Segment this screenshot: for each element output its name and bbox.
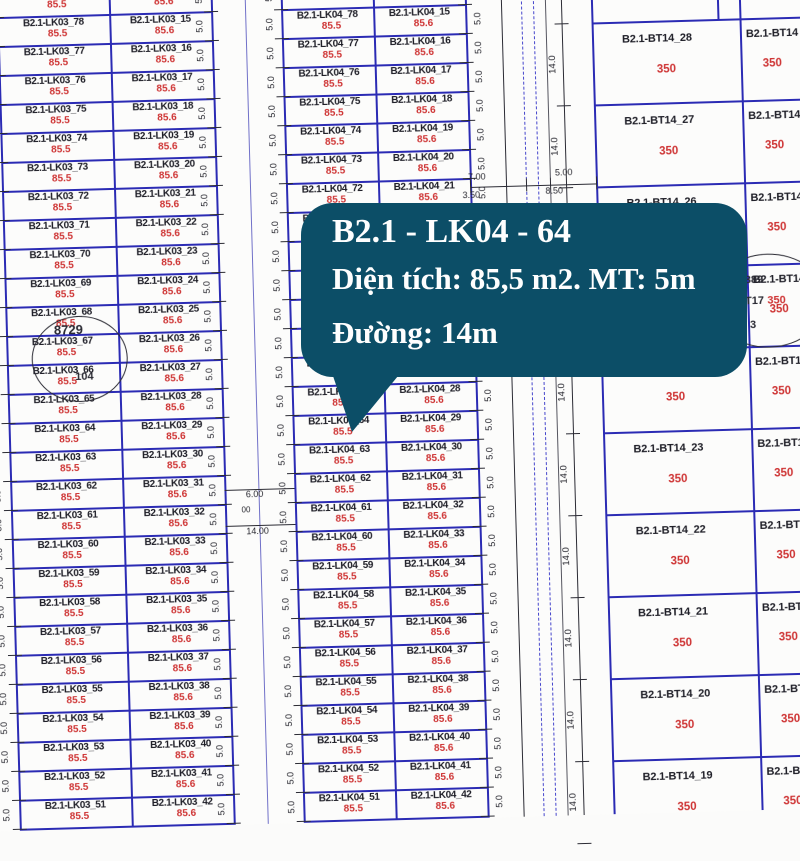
- plot-area: 85.6: [164, 373, 184, 385]
- plot-label[interactable]: B2.1-LK03_31: [143, 477, 204, 490]
- plot-area: 85.5: [336, 542, 356, 554]
- plot-label[interactable]: B2.1-LK03_57: [40, 625, 101, 638]
- plot-area: 85.5: [334, 455, 354, 467]
- plot-area: 85.6: [172, 633, 192, 645]
- dimension-label: 5.0: [279, 539, 289, 552]
- plot-label[interactable]: B2.1-LK03_61: [37, 509, 98, 522]
- plot-area: 85.6: [163, 315, 183, 327]
- dimension-label: 5.0: [285, 771, 295, 784]
- plot-label[interactable]: B2.1-LK04_40: [409, 731, 470, 744]
- dimension-tick: [215, 388, 229, 390]
- plot-area: 85.5: [341, 716, 361, 728]
- plot-label[interactable]: B2.1-LK03_35: [146, 593, 207, 606]
- plot-area: 350: [772, 385, 792, 398]
- plot-label[interactable]: B2.1-LK04_74: [300, 124, 361, 137]
- dimension-label: 5.0: [272, 307, 282, 320]
- dimension-label: 5.0: [280, 568, 290, 581]
- plot-label[interactable]: B2.1-LK03_26: [139, 332, 200, 345]
- dimension-tick: [506, 179, 508, 192]
- plot-area: 85.5: [322, 49, 342, 61]
- dimension-label: 5.0: [198, 165, 208, 178]
- dimension-label: 5.0: [483, 389, 493, 402]
- plot-label[interactable]: B2.1-LK03_52: [44, 770, 105, 783]
- plot-label[interactable]: B2.1-BT14_19: [642, 769, 712, 783]
- dimension-label: 5.0: [203, 338, 213, 351]
- plot-area: 85.5: [62, 520, 82, 532]
- dimension-tick: [215, 417, 229, 419]
- plot-label[interactable]: B2.1-BT14: [748, 109, 800, 122]
- plot-area: 350: [767, 294, 786, 307]
- plot-label[interactable]: B2.1-BT14: [764, 682, 800, 695]
- plot-label[interactable]: B2.1-LK03_62: [36, 480, 97, 493]
- boundary-line: [0, 0, 22, 831]
- plot-area: 350: [670, 555, 690, 568]
- plot-label[interactable]: B2.1-LK04_31: [402, 470, 463, 483]
- plot-label[interactable]: B2.1-LK04_54: [316, 704, 377, 717]
- plot-area: 85.5: [339, 629, 359, 641]
- dimension-label: 5.0: [0, 489, 3, 502]
- plot-label[interactable]: B2.1-BT14: [755, 355, 800, 368]
- plot-label[interactable]: B2.1-LK03_60: [37, 538, 98, 551]
- plot-label[interactable]: B2.1-LK03_19: [133, 129, 194, 142]
- plot-label[interactable]: B2.1-LK03_38: [148, 680, 209, 693]
- dimension-label: 5.0: [265, 47, 275, 60]
- plot-label[interactable]: B2.1-LK03_63: [35, 451, 96, 464]
- boundary-line: [500, 0, 525, 817]
- plot-label[interactable]: B2.1-LK03_74: [26, 132, 87, 145]
- plot-label[interactable]: B2.1-LK03_75: [25, 103, 86, 116]
- dimension-label: 5.0: [208, 512, 218, 525]
- plot-area: 85.5: [54, 260, 74, 272]
- dimension-label: 5.0: [473, 41, 483, 54]
- callout-pointer: [320, 368, 410, 438]
- dimension-tick: [219, 562, 233, 564]
- plot-label[interactable]: B2.1-LK03_37: [148, 651, 209, 664]
- dimension-label: 5.0: [215, 744, 225, 757]
- plot-area: 85.6: [159, 170, 179, 182]
- plot-label[interactable]: B2.1-LK03_29: [141, 419, 202, 432]
- boundary-line: [280, 0, 305, 823]
- dimension-label: 5.0: [272, 279, 282, 292]
- boundary-line: [210, 0, 235, 825]
- plot-label[interactable]: B2.1-LK04_15: [389, 6, 450, 19]
- plot-label[interactable]: B2.1-LK03_39: [149, 709, 210, 722]
- plot-label[interactable]: B2.1-LK03_69: [30, 277, 91, 290]
- plot-label[interactable]: B2.1-LK04_56: [314, 646, 375, 659]
- plot-area: 85.6: [414, 46, 434, 58]
- dimension-label: 5.0: [210, 570, 220, 583]
- dimension-label: 5.0: [268, 134, 278, 147]
- dimension-label: 5.0: [198, 136, 208, 149]
- plot-label[interactable]: B2.1-LK04_16: [389, 35, 450, 48]
- plot-label[interactable]: B2.1-LK03_32: [144, 506, 205, 519]
- plot-label[interactable]: B2.1-LK03_25: [138, 303, 199, 316]
- survey-number: 104: [75, 371, 94, 384]
- plot-area: 85.6: [174, 720, 194, 732]
- dimension-tick: [223, 678, 237, 680]
- plot-area: 85.5: [47, 0, 67, 10]
- plot-label[interactable]: B2.1-LK03_76: [24, 74, 85, 87]
- plot-area: 85.6: [435, 771, 455, 783]
- plot-area: 85.6: [432, 684, 452, 696]
- plot-label[interactable]: B2.1-BT14_22: [636, 524, 706, 538]
- dimension-label: 5.0: [285, 742, 295, 755]
- plot-label[interactable]: B2.1-LK03_72: [28, 190, 89, 203]
- plot-label[interactable]: B2.1-LK04_36: [406, 615, 467, 628]
- plot-label[interactable]: B2.1-LK04_18: [391, 93, 452, 106]
- plot-label[interactable]: B2.1-LK03_70: [29, 248, 90, 261]
- dimension-tick: [459, 33, 473, 35]
- plot-label[interactable]: B2.1-LK04_34: [404, 557, 465, 570]
- plot-label[interactable]: B2.1-LK04_77: [297, 38, 358, 51]
- dimension-label: 5.0: [0, 634, 7, 647]
- plot-area: 85.6: [155, 25, 175, 37]
- dimension-label: 5.0: [199, 193, 209, 206]
- plot-area: 85.5: [52, 173, 72, 185]
- boundary-line: [608, 590, 800, 598]
- plot-label[interactable]: B2.1-LK04_76: [298, 67, 359, 80]
- dimension-label: 5.0: [263, 0, 273, 1]
- dimension-tick: [213, 330, 227, 332]
- plot-area: 85.6: [164, 344, 184, 356]
- dimension-tick: [473, 555, 487, 557]
- dimension-label: 5.0: [275, 394, 285, 407]
- dimension-tick: [214, 359, 228, 361]
- dimension-label: 5.0: [475, 99, 485, 112]
- survey-number: 8729: [54, 322, 83, 338]
- plot-area: 85.5: [48, 28, 68, 40]
- dimension-tick: [481, 816, 495, 818]
- plot-area: 350: [657, 63, 677, 76]
- dimension-label: 14.0: [561, 547, 573, 566]
- dimension-tick: [226, 794, 240, 796]
- plot-label[interactable]: B2.1-LK03_77: [24, 45, 85, 58]
- dimension-tick: [221, 620, 235, 622]
- dimension-label: 14.0: [568, 793, 580, 812]
- plot-label[interactable]: B2.1-LK03_30: [142, 448, 203, 461]
- plot-label[interactable]: B2.1-LK03_73: [27, 161, 88, 174]
- plot-label[interactable]: B2.1-BT14: [766, 764, 800, 777]
- plot-label[interactable]: B2.1-LK03_54: [42, 712, 103, 725]
- callout-plot-id: B2.1 - LK04 - 64: [332, 213, 571, 251]
- plot-label[interactable]: B2.1-LK04_53: [317, 733, 378, 746]
- plot-area: 85.6: [156, 54, 176, 66]
- plot-label[interactable]: B2.1-LK04_59: [312, 559, 373, 572]
- dimension-tick: [479, 758, 493, 760]
- dimension-label: 8.50: [545, 185, 563, 195]
- plot-label[interactable]: B2.1-BT14_20: [640, 687, 710, 701]
- plot-label[interactable]: B2.1-LK04_55: [315, 675, 376, 688]
- plot-label[interactable]: B2.1-LK03_58: [39, 596, 100, 609]
- plot-label[interactable]: B2.1-LK04_73: [301, 153, 362, 166]
- plot-label[interactable]: B2.1-LK03_55: [41, 683, 102, 696]
- dimension-tick: [573, 679, 587, 681]
- plot-label[interactable]: B2.1-LK03_15: [130, 13, 191, 26]
- dimension-label: 5.0: [215, 773, 225, 786]
- plot-area: 85.6: [160, 228, 180, 240]
- boundary-line: [244, 0, 268, 824]
- plot-area: 85.6: [170, 575, 190, 587]
- plot-area: 85.6: [431, 626, 451, 638]
- dimension-label: 5.0: [273, 336, 283, 349]
- plot-label[interactable]: B2.1-LK03_20: [134, 158, 195, 171]
- plot-area: 85.6: [430, 597, 450, 609]
- plot-area: 85.6: [429, 568, 449, 580]
- plot-label[interactable]: B2.1-LK04_62: [310, 472, 371, 485]
- dimension-label: 5.0: [0, 779, 10, 792]
- road-lane-line: [520, 0, 544, 816]
- plot-label[interactable]: B2.1-LK03_53: [43, 741, 104, 754]
- dimension-label: 5.0: [487, 534, 497, 547]
- plot-label[interactable]: B2.1-BT14: [757, 437, 800, 450]
- plot-label[interactable]: B2.1-LK04_19: [392, 122, 453, 135]
- plot-label[interactable]: B2.1-BT14: [750, 191, 800, 204]
- dimension-label: 5.0: [206, 454, 216, 467]
- boundary-line: [612, 754, 800, 762]
- dimension-label: 5.0: [195, 49, 205, 62]
- dimension-label: 00: [241, 505, 250, 514]
- plot-area: 85.6: [418, 162, 438, 174]
- plot-label[interactable]: B2.1-LK03_23: [136, 245, 197, 258]
- plot-label[interactable]: B2.1-LK03_42: [152, 796, 213, 809]
- plot-area: 85.5: [69, 781, 89, 793]
- dimension-tick: [477, 700, 491, 702]
- dimension-tick: [470, 439, 484, 441]
- plot-label[interactable]: B2.1-LK04_61: [310, 501, 371, 514]
- dimension-tick: [211, 272, 225, 274]
- dimension-tick: [207, 98, 221, 100]
- plot-label[interactable]: B2.1-LK04_20: [393, 151, 454, 164]
- dimension-label: 5.0: [488, 563, 498, 576]
- dimension-label: 5.0: [475, 128, 485, 141]
- plot-label[interactable]: B2.1-LK03_27: [139, 361, 200, 374]
- plot-area: 85.5: [58, 404, 78, 416]
- plot-area: 85.6: [166, 431, 186, 443]
- plot-area: 85.6: [156, 83, 176, 95]
- dimension-tick: [478, 729, 492, 731]
- callout-area-line: Diện tích: 85,5 m2. MT: 5m: [332, 261, 696, 297]
- dimension-tick: [219, 533, 233, 535]
- plot-label[interactable]: B2.1-LK03_18: [132, 100, 193, 113]
- dimension-tick: [476, 642, 490, 644]
- plot-label[interactable]: B2.1-BT14: [759, 519, 800, 532]
- dimension-label: 5.0: [485, 476, 495, 489]
- dimension-label: 5.0: [0, 431, 1, 444]
- plot-area: 85.5: [68, 752, 88, 764]
- plot-label[interactable]: B2.1-LK04_52: [318, 762, 379, 775]
- dimension-tick: [460, 91, 474, 93]
- plot-area: 85.5: [326, 165, 346, 177]
- dimension-label: 14.0: [565, 711, 577, 730]
- dimension-tick: [216, 446, 230, 448]
- plot-label[interactable]: B2.1-LK04_58: [313, 588, 374, 601]
- plot-label[interactable]: B2.1-LK04_17: [390, 64, 451, 77]
- plot-label[interactable]: B2.1-BT14_27: [624, 114, 694, 128]
- dimension-label: 5.0: [268, 163, 278, 176]
- plot-area: 85.6: [433, 713, 453, 725]
- plot-label[interactable]: B2.1-LK03_51: [45, 799, 106, 812]
- dimension-label: 5.0: [201, 251, 211, 264]
- plot-label[interactable]: B2.1-LK04_78: [297, 9, 358, 22]
- plot-area: 85.6: [425, 423, 445, 435]
- plot-area: 85.6: [157, 112, 177, 124]
- plot-area: 85.5: [342, 745, 362, 757]
- dimension-label: 5.0: [207, 483, 217, 496]
- plot-label[interactable]: B2.1-LK03_78: [23, 16, 84, 29]
- plot-area: 85.5: [55, 289, 75, 301]
- plot-area: 85.5: [62, 549, 82, 561]
- dimension-tick: [568, 515, 582, 517]
- dimension-label: 5.0: [0, 576, 5, 589]
- plot-label[interactable]: B2.1-LK03_40: [150, 738, 211, 751]
- dimension-tick: [471, 468, 485, 470]
- dimension-tick: [220, 591, 234, 593]
- plot-area: 85.6: [171, 604, 191, 616]
- plot-label[interactable]: B2.1-LK04_75: [299, 96, 360, 109]
- plot-label[interactable]: B2.1-LK03_64: [34, 422, 95, 435]
- boundary-line: [610, 672, 800, 680]
- plot-label[interactable]: B2.1-LK04_21: [394, 180, 455, 193]
- plot-label[interactable]: B2.1-LK04_38: [407, 673, 468, 686]
- plot-area: 85.6: [168, 488, 188, 500]
- plot-label[interactable]: B2.1-LK03_33: [144, 535, 205, 548]
- plot-area: 85.6: [162, 286, 182, 298]
- dimension-tick: [468, 381, 482, 383]
- dimension-tick: [204, 11, 218, 13]
- dimension-label: 5.0: [213, 686, 223, 699]
- dimension-tick: [212, 301, 226, 303]
- plot-label[interactable]: B2.1-LK03_21: [135, 187, 196, 200]
- plot-area: 85.5: [337, 571, 357, 583]
- callout-road-line: Đường: 14m: [332, 315, 498, 351]
- dimension-label: 5.0: [0, 460, 2, 473]
- dimension-label: 5.0: [214, 715, 224, 728]
- dimension-tick: [462, 149, 476, 151]
- dimension-tick: [217, 475, 231, 477]
- dimension-label: 5.0: [486, 505, 496, 518]
- plot-area: 85.5: [343, 774, 363, 786]
- plot-label[interactable]: B2.1-LK04_30: [401, 441, 462, 454]
- dimension-label: 5.0: [0, 518, 3, 531]
- plot-label[interactable]: B2.1-LK04_57: [314, 617, 375, 630]
- dimension-tick: [473, 526, 487, 528]
- plot-label[interactable]: B2.1-LK04_63: [309, 443, 370, 456]
- plot-area: 85.6: [416, 104, 436, 116]
- dimension-label: 14.0: [547, 55, 559, 74]
- plot-area: 350: [668, 473, 688, 486]
- plot-area: 85.5: [50, 115, 70, 127]
- plot-area: 85.6: [169, 546, 189, 558]
- plot-label[interactable]: B2.1-LK04_60: [311, 530, 372, 543]
- plot-label[interactable]: B2.1-LK03_34: [145, 564, 206, 577]
- plot-label[interactable]: B2.1-LK04_41: [410, 760, 471, 773]
- plot-area: 85.6: [424, 394, 444, 406]
- plot-label[interactable]: B2.1-LK03_22: [135, 216, 196, 229]
- dimension-tick: [474, 584, 488, 586]
- dimension-label: 5.0: [280, 597, 290, 610]
- plot-area: 350: [779, 631, 799, 644]
- dimension-label: 5.0: [264, 18, 274, 31]
- plot-label[interactable]: B2.1-LK03_71: [28, 219, 89, 232]
- plot-area: 350: [776, 549, 796, 562]
- plot-label[interactable]: B2.1-LK04_37: [406, 644, 467, 657]
- plot-label[interactable]: B2.1-LK03_36: [147, 622, 208, 635]
- plot-area: 85.6: [426, 452, 446, 464]
- dimension-label: 5.0: [494, 794, 504, 807]
- dimension-label: 5.0: [197, 107, 207, 120]
- dimension-label: 3.50: [462, 190, 480, 200]
- dimension-label: 14.00: [246, 526, 269, 537]
- dimension-tick: [211, 243, 225, 245]
- plot-area: 85.5: [335, 484, 355, 496]
- dimension-label: 5.00: [555, 167, 573, 177]
- plot-label[interactable]: B2.1-BT14: [746, 27, 798, 40]
- dimension-tick: [469, 410, 483, 412]
- dimension-tick: [205, 40, 219, 42]
- plot-info-callout: B2.1 - LK04 - 64 Diện tích: 85,5 m2. MT:…: [301, 203, 747, 377]
- dimension-label: 5.0: [204, 367, 214, 380]
- dimension-label: 5.0: [269, 192, 279, 205]
- plot-label[interactable]: B2.1-BT14_28: [622, 32, 692, 46]
- plot-label[interactable]: B2.1-LK04_33: [403, 528, 464, 541]
- plot-label[interactable]: B2.1-BT14_23: [633, 442, 703, 456]
- dimension-label: 5.0: [472, 12, 482, 25]
- plot-area: 350: [783, 795, 800, 808]
- dimension-label: 7.00: [468, 172, 486, 182]
- plot-label[interactable]: B2.1-LK04_42: [411, 789, 472, 802]
- plot-label[interactable]: B2.1-LK04_72: [302, 182, 363, 195]
- dimension-label: 5.0: [271, 250, 281, 263]
- plot-area: 85.5: [344, 803, 364, 815]
- plot-area: 350: [666, 391, 686, 404]
- plot-area: 85.6: [427, 481, 447, 493]
- dimension-label: 5.0: [492, 737, 502, 750]
- dimension-tick: [480, 787, 494, 789]
- plot-label[interactable]: B2.1-BT14: [762, 601, 800, 614]
- plot-area: 85.6: [415, 75, 435, 87]
- plot-area: 85.6: [435, 800, 455, 812]
- plot-area: 350: [763, 57, 783, 70]
- plot-label[interactable]: B2.1-LK03_17: [131, 71, 192, 84]
- plot-label[interactable]: B2.1-LK03_28: [140, 390, 201, 403]
- plot-label[interactable]: B2.1-LK03_41: [151, 767, 212, 780]
- plot-label[interactable]: B2.1-LK04_32: [402, 499, 463, 512]
- dimension-label: 5.0: [283, 684, 293, 697]
- plot-label[interactable]: B2.1-LK03_24: [137, 274, 198, 287]
- dimension-tick: [472, 497, 486, 499]
- plot-area: 85.5: [325, 136, 345, 148]
- plot-area: 85.5: [323, 78, 343, 90]
- plot-area: 85.6: [158, 141, 178, 153]
- plot-label[interactable]: B2.1-LK03_56: [41, 654, 102, 667]
- survey-number: 3: [750, 319, 756, 331]
- dimension-tick: [210, 214, 224, 216]
- dimension-label: 5.0: [276, 423, 286, 436]
- dimension-label: 5.0: [474, 70, 484, 83]
- plot-area: 85.6: [167, 459, 187, 471]
- plot-label[interactable]: B2.1-LK04_39: [408, 702, 469, 715]
- plot-label[interactable]: B2.1-LK04_35: [405, 586, 466, 599]
- plot-label[interactable]: B2.1-LK03_16: [131, 42, 192, 55]
- dimension-label: 5.0: [202, 309, 212, 322]
- plot-label[interactable]: B2.1-LK03_59: [38, 567, 99, 580]
- dimension-label: 5.0: [211, 628, 221, 641]
- plot-area: 85.6: [154, 0, 174, 7]
- dimension-tick: [460, 62, 474, 64]
- plot-label[interactable]: B2.1-BT14_21: [638, 605, 708, 619]
- plot-area: 85.5: [51, 144, 71, 156]
- plot-label[interactable]: B2.1-LK04_51: [319, 791, 380, 804]
